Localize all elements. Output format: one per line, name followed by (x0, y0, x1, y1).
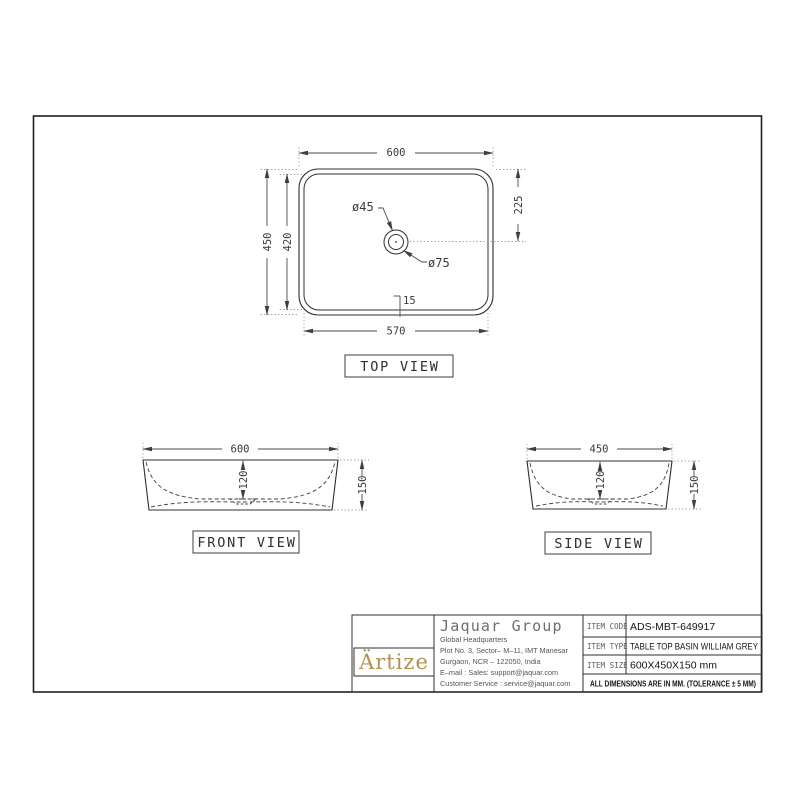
address-line: Global Headquarters (440, 635, 508, 644)
dimension-value: 120 (238, 471, 250, 490)
dimension-value: 570 (387, 326, 406, 338)
item-size-label: ITEM SIZE (587, 661, 628, 670)
view-title: FRONT VIEW (197, 535, 296, 551)
dimension-value: 15 (403, 295, 416, 307)
dimension-value: 420 (282, 233, 294, 252)
dimension-value: 120 (595, 471, 607, 490)
dimension-value: 225 (513, 196, 525, 215)
address-line: E–mail : Sales: support@jaquar.com (440, 668, 558, 677)
item-type-value: TABLE TOP BASIN WILLIAM GREY (630, 642, 759, 653)
view-title: TOP VIEW (360, 359, 439, 375)
dimension-value: ø75 (428, 256, 450, 270)
drawing-sheet: 600 450 420 225 (0, 0, 800, 800)
front-view-label: FRONT VIEW (193, 531, 299, 553)
tolerance-note: ALL DIMENSIONS ARE IN MM. (TOLERANCE ± 5… (590, 680, 756, 689)
brand-logo: Ärtize (354, 648, 434, 676)
view-title: SIDE VIEW (554, 536, 643, 552)
dimension-value: 150 (689, 476, 701, 495)
company-name: Jaquar Group (440, 617, 563, 635)
address-line: Plot No. 3, Sector– M–11, IMT Manesar (440, 646, 568, 655)
item-code-label: ITEM CODE (587, 622, 628, 631)
item-code-value: ADS-MBT-649917 (630, 621, 715, 633)
dimension-value: 450 (262, 233, 274, 252)
drain-center-dot (395, 241, 397, 243)
top-view-label: TOP VIEW (345, 355, 453, 377)
side-view-label: SIDE VIEW (545, 532, 651, 554)
dimension-value: 600 (387, 147, 406, 159)
dimension-value: 600 (231, 444, 250, 456)
brand-logo-text: Ärtize (358, 650, 429, 674)
address-line: Customer Service : service@jaquar.com (440, 679, 570, 688)
address-line: Gurgaon, NCR – 122050, India (440, 657, 542, 666)
item-size-value: 600X450X150 mm (630, 660, 717, 672)
technical-drawing-svg: 600 450 420 225 (0, 0, 800, 800)
dimension-value: 150 (357, 476, 369, 495)
item-type-label: ITEM TYPE (587, 642, 628, 651)
dimension-value: ø45 (352, 200, 374, 214)
dimension-value: 450 (590, 444, 609, 456)
